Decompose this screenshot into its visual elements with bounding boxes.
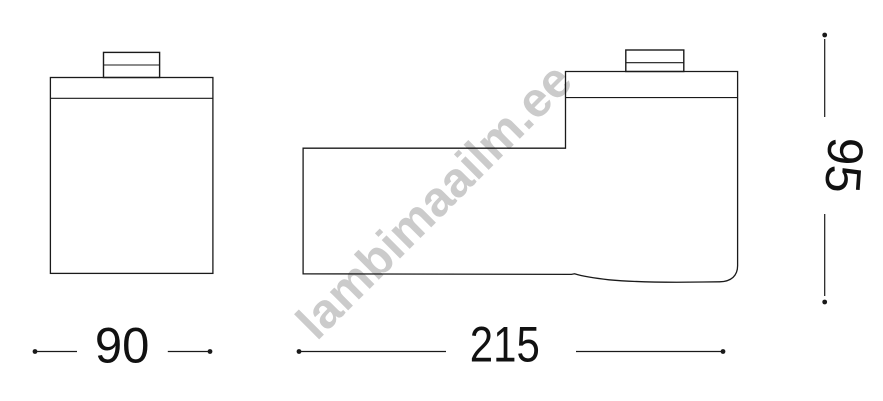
svg-text:lambimaailm.ee: lambimaailm.ee <box>286 53 582 349</box>
svg-text:90: 90 <box>95 318 150 374</box>
svg-text:95: 95 <box>814 136 874 195</box>
svg-text:215: 215 <box>470 316 540 372</box>
